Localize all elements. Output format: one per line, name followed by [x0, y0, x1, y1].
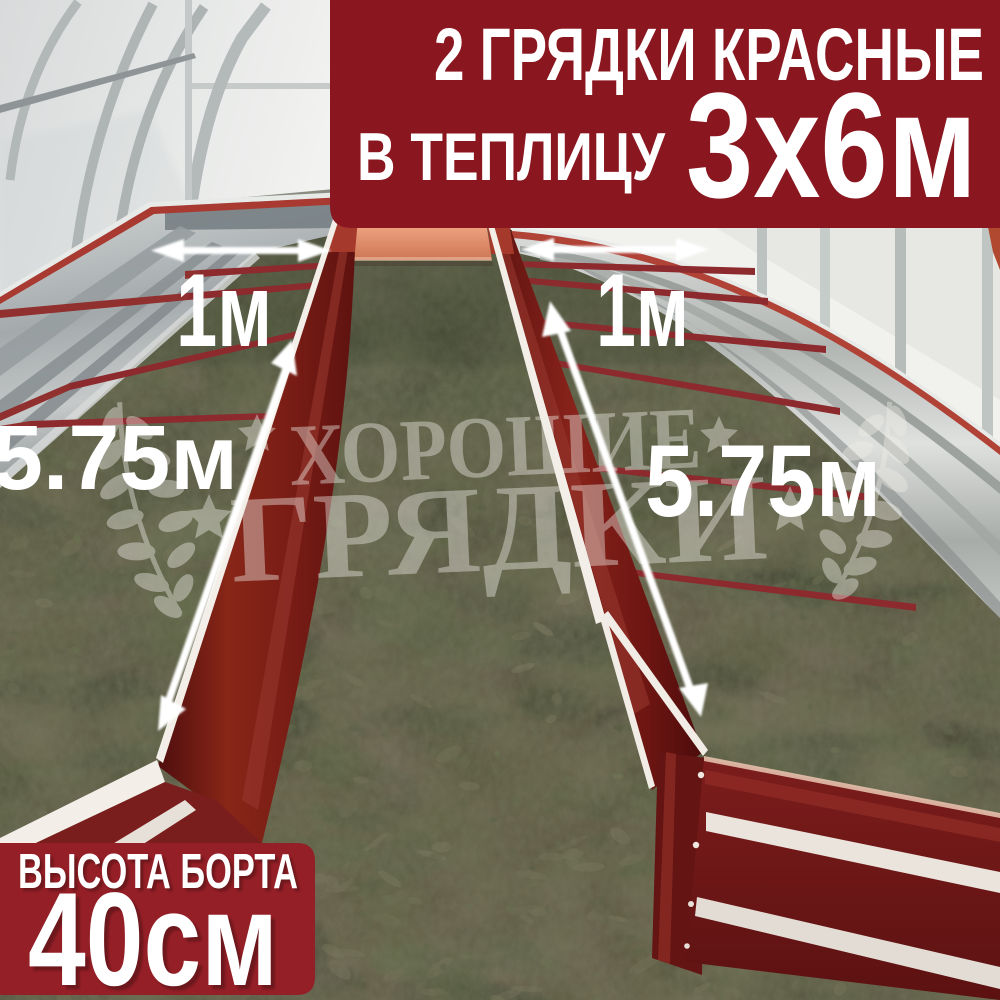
- svg-text:В ТЕПЛИЦУ: В ТЕПЛИЦУ: [357, 119, 666, 195]
- svg-text:1м: 1м: [596, 253, 689, 369]
- svg-text:3х6м: 3х6м: [686, 61, 977, 229]
- svg-text:5.75м: 5.75м: [0, 407, 238, 509]
- svg-text:5.75м: 5.75м: [645, 424, 881, 538]
- svg-text:1м: 1м: [176, 253, 272, 369]
- svg-text:40см: 40см: [28, 866, 278, 1000]
